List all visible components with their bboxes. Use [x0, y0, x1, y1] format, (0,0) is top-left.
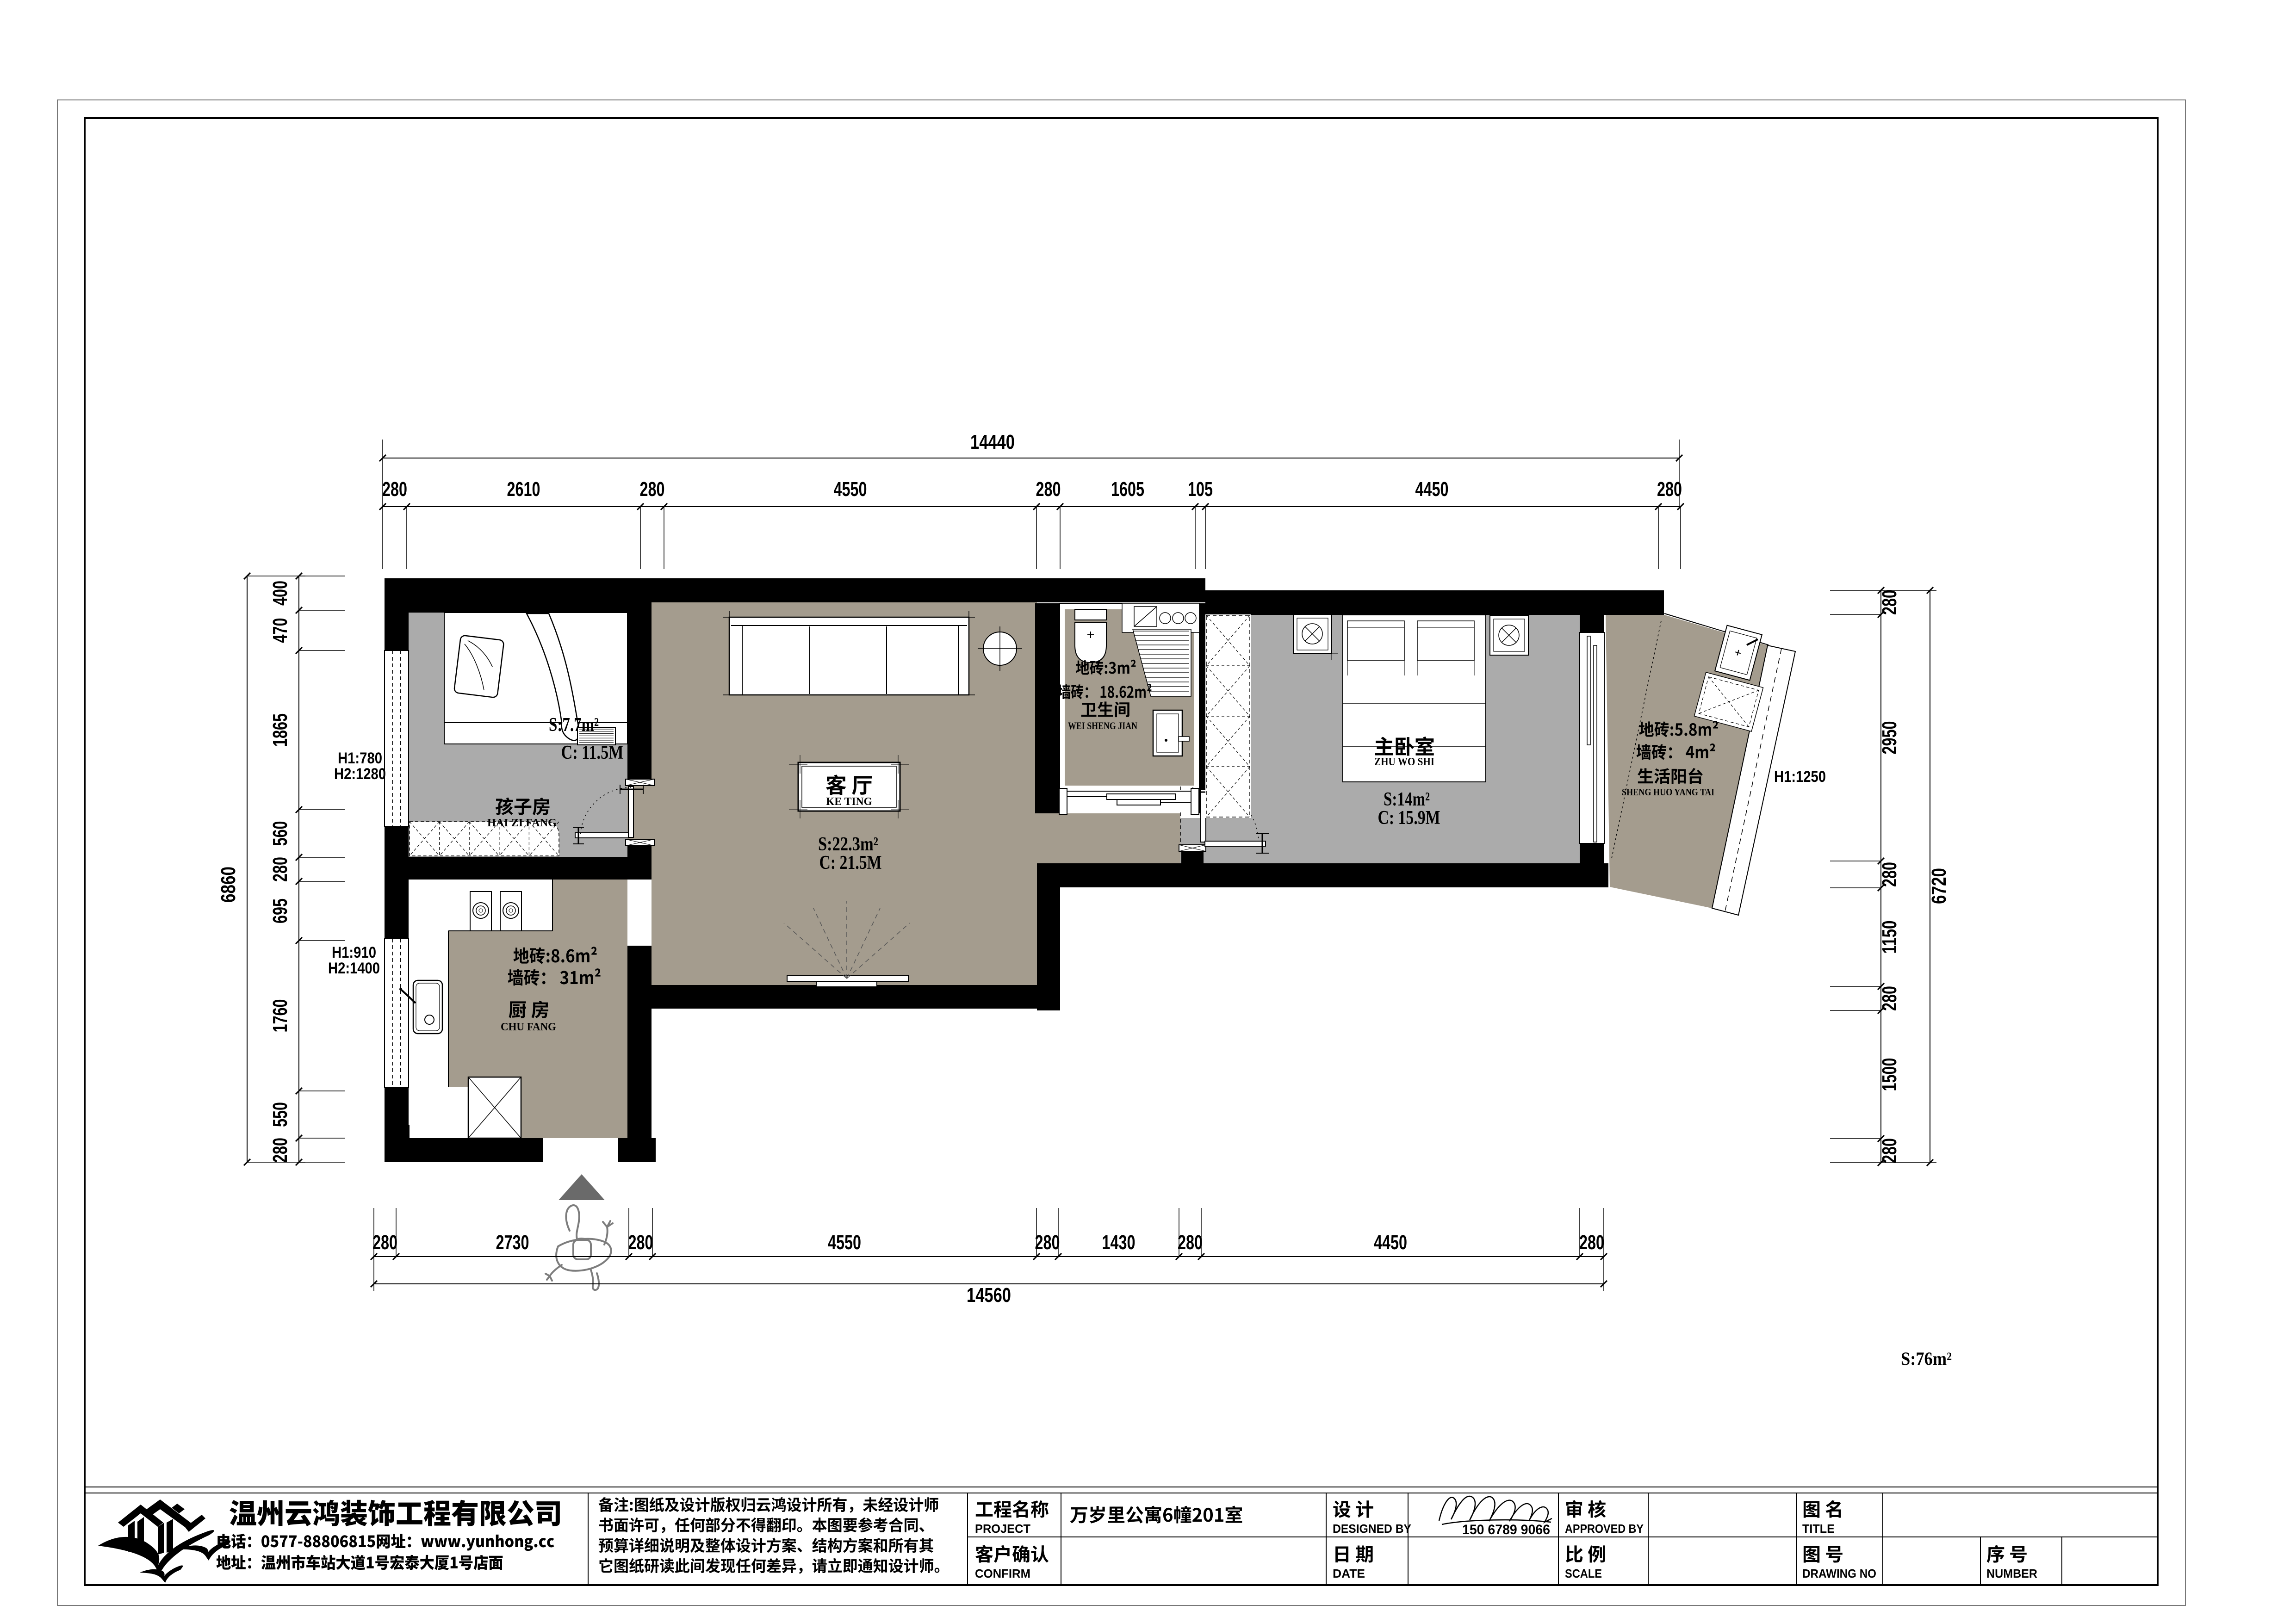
svg-text:SCALE: SCALE	[1565, 1567, 1602, 1580]
svg-text:14560: 14560	[967, 1284, 1011, 1307]
svg-text:C: 11.5M: C: 11.5M	[561, 742, 624, 763]
svg-text:280: 280	[1878, 590, 1901, 615]
svg-text:DRAWING NO: DRAWING NO	[1802, 1567, 1876, 1580]
svg-text:6720: 6720	[1928, 868, 1950, 904]
svg-text:1760: 1760	[269, 999, 292, 1033]
svg-text:550: 550	[269, 1102, 292, 1127]
svg-text:DATE: DATE	[1333, 1567, 1365, 1580]
svg-text:6860: 6860	[217, 867, 240, 903]
svg-text:C: 21.5M: C: 21.5M	[819, 852, 882, 873]
svg-text:280: 280	[1878, 1138, 1901, 1163]
svg-text:DESIGNED BY: DESIGNED BY	[1333, 1522, 1411, 1536]
svg-text:280: 280	[1657, 478, 1682, 501]
svg-text:695: 695	[269, 898, 292, 923]
svg-text:CONFIRM: CONFIRM	[975, 1567, 1030, 1580]
svg-text:KE TING: KE TING	[826, 796, 872, 808]
svg-text:280: 280	[628, 1231, 653, 1254]
svg-text:280: 280	[372, 1231, 397, 1254]
svg-text:H1:780: H1:780	[338, 750, 382, 767]
svg-text:HAI ZI FANG: HAI ZI FANG	[487, 817, 557, 829]
svg-text:S:7.7m²: S:7.7m²	[549, 714, 599, 736]
svg-text:2730: 2730	[496, 1231, 529, 1254]
svg-text:1605: 1605	[1111, 478, 1144, 501]
svg-text:150 6789 9066: 150 6789 9066	[1462, 1522, 1550, 1537]
svg-text:280: 280	[1878, 986, 1901, 1011]
svg-text:105: 105	[1188, 478, 1213, 501]
svg-text:280: 280	[1035, 1231, 1060, 1254]
svg-text:280: 280	[1878, 862, 1901, 887]
svg-text:SHENG HUO YANG TAI: SHENG HUO YANG TAI	[1622, 787, 1714, 798]
svg-text:H2:1280: H2:1280	[334, 765, 386, 783]
svg-text:280: 280	[1178, 1231, 1203, 1254]
svg-text:1430: 1430	[1102, 1231, 1136, 1254]
svg-text:14440: 14440	[970, 431, 1015, 453]
svg-text:CHU FANG: CHU FANG	[501, 1021, 556, 1033]
svg-text:280: 280	[1579, 1231, 1604, 1254]
svg-text:4550: 4550	[834, 478, 867, 501]
svg-text:4450: 4450	[1415, 478, 1449, 501]
svg-text:4550: 4550	[828, 1231, 861, 1254]
svg-text:280: 280	[269, 1138, 292, 1163]
svg-text:280: 280	[1036, 478, 1061, 501]
svg-text:H1:1250: H1:1250	[1774, 768, 1826, 786]
svg-text:S:76m²: S:76m²	[1901, 1348, 1952, 1369]
svg-text:H1:910: H1:910	[332, 944, 376, 961]
svg-text:WEI SHENG JIAN: WEI SHENG JIAN	[1068, 720, 1137, 731]
svg-text:4450: 4450	[1374, 1231, 1407, 1254]
svg-text:470: 470	[269, 618, 292, 643]
svg-text:2950: 2950	[1878, 721, 1901, 755]
svg-text:1500: 1500	[1878, 1058, 1901, 1091]
svg-text:PROJECT: PROJECT	[975, 1522, 1030, 1536]
svg-text:1865: 1865	[269, 713, 292, 747]
svg-text:2610: 2610	[507, 478, 540, 501]
svg-text:280: 280	[269, 857, 292, 882]
svg-text:NUMBER: NUMBER	[1986, 1567, 2037, 1580]
svg-text:ZHU WO SHI: ZHU WO SHI	[1374, 756, 1434, 768]
svg-text:280: 280	[382, 478, 407, 501]
svg-text:1150: 1150	[1878, 921, 1901, 954]
svg-text:280: 280	[640, 478, 665, 501]
svg-text:400: 400	[269, 581, 292, 606]
svg-text:APPROVED BY: APPROVED BY	[1565, 1522, 1644, 1536]
svg-text:H2:1400: H2:1400	[328, 960, 380, 977]
svg-text:560: 560	[269, 821, 292, 846]
svg-text:C: 15.9M: C: 15.9M	[1378, 807, 1440, 829]
svg-text:TITLE: TITLE	[1802, 1522, 1835, 1536]
